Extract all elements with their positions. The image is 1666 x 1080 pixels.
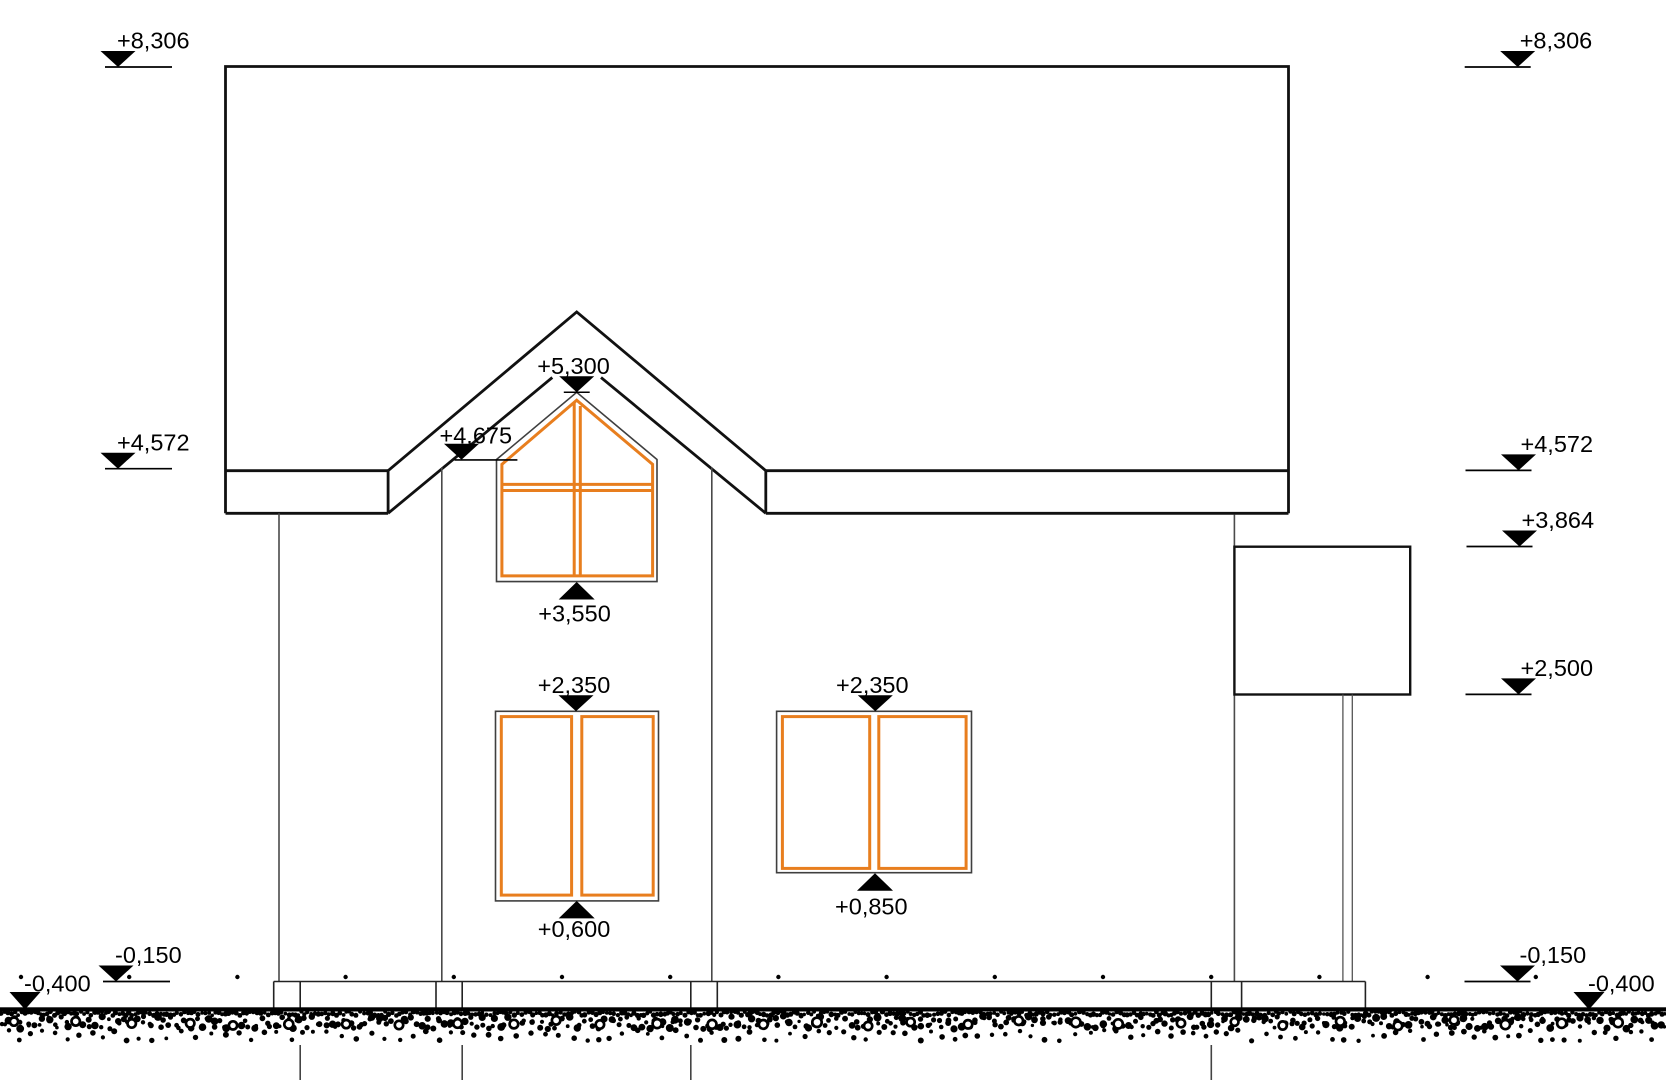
svg-text:+8,306: +8,306: [117, 28, 190, 54]
svg-text:-0,400: -0,400: [24, 971, 91, 997]
svg-text:+5,300: +5,300: [537, 353, 610, 379]
svg-text:+0,850: +0,850: [835, 894, 908, 920]
svg-text:+3,550: +3,550: [538, 601, 611, 627]
svg-text:+3,864: +3,864: [1522, 507, 1595, 533]
svg-text:-0,150: -0,150: [115, 942, 182, 968]
svg-text:+2,350: +2,350: [836, 672, 909, 698]
svg-text:+4,572: +4,572: [1521, 431, 1594, 457]
svg-text:-0,150: -0,150: [1520, 942, 1587, 968]
svg-text:+0,600: +0,600: [538, 916, 611, 942]
svg-text:+8,306: +8,306: [1520, 28, 1593, 54]
svg-text:+2,350: +2,350: [538, 672, 611, 698]
svg-text:+4,675: +4,675: [440, 423, 513, 449]
svg-text:-0,400: -0,400: [1588, 971, 1655, 997]
svg-text:+2,500: +2,500: [1521, 655, 1594, 681]
svg-text:+4,572: +4,572: [117, 429, 190, 455]
